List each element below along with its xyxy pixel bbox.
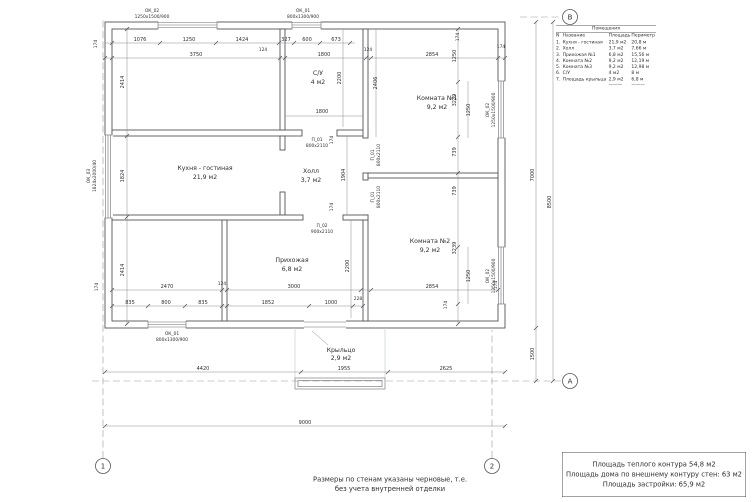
dim-label: 739 bbox=[452, 186, 458, 196]
summary-line-2: Площадь дома по внешнему контуру стен: 6… bbox=[563, 469, 746, 479]
dim-label: 174 bbox=[93, 40, 99, 49]
dim-label: 2200 bbox=[345, 260, 351, 273]
summary-box: Площадь теплого контура 54,8 м2 Площадь … bbox=[562, 452, 746, 497]
dim-label: 3750 bbox=[190, 52, 203, 58]
axis-label-2: 2 bbox=[490, 463, 494, 471]
room-name-entry: Прихожая bbox=[275, 257, 308, 264]
floor-plan-drawing: В А 1 2 Кухня - гостиная 21,9 м2 С/У 4 м… bbox=[0, 0, 753, 502]
dim-label: 2625 bbox=[440, 366, 453, 372]
legend-cell-area: 2,9 м2——— bbox=[609, 77, 632, 89]
dim-label: 2414 bbox=[120, 264, 126, 277]
room-area-wc: 4 м2 bbox=[311, 79, 326, 86]
dim-label: 124 bbox=[364, 47, 373, 53]
dim-label: 1904 bbox=[341, 169, 347, 182]
axis-label-b: В bbox=[568, 14, 573, 22]
dim-label: 739 bbox=[452, 147, 458, 157]
legend-cell-name: Кухня - гостиная bbox=[563, 40, 609, 46]
window-tag-size: 1250х1500/900 bbox=[491, 92, 497, 127]
dim-label: 600 bbox=[302, 37, 312, 43]
dim-label: 174 bbox=[493, 281, 499, 290]
dim-label: 800 bbox=[161, 300, 171, 306]
dim-label: 1250 bbox=[452, 50, 458, 63]
dim-label: 174 bbox=[455, 33, 461, 42]
legend-dash: ——— bbox=[609, 82, 623, 87]
dim-label: 174 bbox=[329, 136, 335, 145]
window-tag-size: 1250х1500/900 bbox=[135, 14, 170, 20]
room-area-hall: 3,7 м2 bbox=[301, 177, 321, 184]
dim-label: 228 bbox=[354, 296, 363, 302]
room-name-porch: Крыльцо bbox=[327, 347, 356, 354]
note-line-2: без учета внутренней отделки bbox=[295, 484, 485, 493]
dim-label: 835 bbox=[198, 300, 208, 306]
dim-label: 124 bbox=[218, 281, 227, 287]
window-tag: ОК_02 bbox=[145, 8, 160, 14]
door-tag: П_02 bbox=[316, 223, 327, 229]
room-name-room2: Комната №2 bbox=[410, 238, 450, 245]
dim-label: 2406 bbox=[373, 77, 379, 90]
porch-steps bbox=[295, 378, 385, 389]
entry-doorway bbox=[304, 320, 346, 329]
dim-label: 9000 bbox=[299, 420, 312, 426]
dim-label: 3239 bbox=[452, 94, 458, 107]
legend-col-name: Название bbox=[563, 33, 609, 40]
summary-line-3: Площадь застройки: 65,9 м2 bbox=[563, 480, 746, 490]
dim-label: 4420 bbox=[197, 366, 210, 372]
axis-label-1: 1 bbox=[101, 463, 105, 471]
legend-header: N Название Площадь Периметр bbox=[556, 33, 656, 40]
dim-label: 174 bbox=[94, 283, 100, 292]
dim-label: 327 bbox=[281, 37, 291, 43]
window-tag: ОК_03 bbox=[86, 169, 92, 184]
room-name-hall: Холл bbox=[303, 168, 319, 175]
dim-label: 3239 bbox=[452, 242, 458, 255]
window-tag: ОК_02 bbox=[485, 269, 491, 284]
door-tag-size: 800х2110 bbox=[376, 144, 382, 166]
note-line-1: Размеры по стенам указаны черновые, т.е. bbox=[295, 475, 485, 484]
dim-label: 7000 bbox=[530, 169, 536, 182]
window-tag: ОК_01 bbox=[296, 8, 311, 14]
window-tag-size: 800х1300/900 bbox=[287, 14, 319, 20]
drawing-note: Размеры по стенам указаны черновые, т.е.… bbox=[295, 475, 485, 494]
dim-label: 1250 bbox=[466, 270, 472, 283]
door-tag: П_01 bbox=[370, 191, 376, 202]
dim-label: 124 bbox=[259, 47, 268, 53]
dim-label: 174 bbox=[329, 203, 335, 212]
door-tag-size: 900х2110 bbox=[311, 229, 333, 235]
dim-label: 3000 bbox=[288, 284, 301, 290]
room-name-kitchen: Кухня - гостиная bbox=[177, 165, 233, 172]
dim-label: 1000 bbox=[325, 300, 338, 306]
dim-label: 2854 bbox=[426, 284, 439, 290]
room-area-room1: 9,2 м2 bbox=[427, 104, 447, 111]
legend-col-area: Площадь bbox=[609, 33, 632, 40]
axis-label-a: А bbox=[568, 378, 573, 386]
dim-label: 1500 bbox=[530, 348, 536, 361]
legend-row: 7. Площадь крыльца 2,9 м2——— 6,8 м——— bbox=[556, 77, 656, 89]
room-name-wc: С/У bbox=[313, 70, 323, 77]
dim-label: 1824 bbox=[120, 170, 126, 183]
window-tag-size: 800х1300/900 bbox=[156, 337, 188, 343]
room-area-entry: 6,8 м2 bbox=[282, 266, 302, 273]
legend-value: 6,8 м bbox=[631, 77, 643, 82]
legend-cell-perimeter: 6,8 м——— bbox=[631, 77, 656, 89]
window-tag-size: 1824х2000/40 bbox=[92, 160, 98, 192]
dim-label: 1250 bbox=[183, 37, 196, 43]
dim-label: 673 bbox=[331, 37, 341, 43]
legend-table: Помещения N Название Площадь Периметр 1.… bbox=[556, 25, 656, 88]
dim-label: 174 bbox=[443, 301, 449, 310]
dim-label: 1800 bbox=[316, 109, 329, 115]
dim-label: 2200 bbox=[337, 72, 343, 85]
room-area-room2: 9,2 м2 bbox=[420, 247, 440, 254]
dim-label: 1955 bbox=[338, 366, 351, 372]
legend-cell-name: Площадь крыльца bbox=[563, 77, 609, 89]
dim-label: 1800 bbox=[318, 52, 331, 58]
door-tag: П_01 bbox=[311, 137, 322, 143]
door-tag-size: 800х2110 bbox=[306, 143, 328, 149]
window-tag: ОК_01 bbox=[165, 331, 180, 337]
dim-label: 174 bbox=[497, 44, 506, 50]
legend-col-perimeter: Периметр bbox=[631, 33, 656, 40]
dim-label: 2414 bbox=[120, 76, 126, 89]
room-area-kitchen: 21,9 м2 bbox=[193, 174, 217, 181]
legend-value: 2,9 м2 bbox=[609, 77, 624, 82]
dim-label: 835 bbox=[125, 300, 135, 306]
dim-label: 2854 bbox=[426, 52, 439, 58]
dim-label: 1424 bbox=[236, 37, 249, 43]
dim-label: 1076 bbox=[134, 37, 147, 43]
legend-title: Помещения bbox=[556, 25, 656, 33]
door-tag: П_01 bbox=[370, 149, 376, 160]
dim-label: 8500 bbox=[547, 196, 553, 209]
legend-dash: ——— bbox=[631, 82, 645, 87]
door-tag-size: 800х2110 bbox=[376, 186, 382, 208]
dim-label: 1250 bbox=[466, 104, 472, 117]
window-tag: ОК_02 bbox=[485, 103, 491, 118]
summary-line-1: Площадь теплого контура 54,8 м2 bbox=[563, 459, 746, 469]
dim-label: 1852 bbox=[262, 300, 275, 306]
dim-label: 2470 bbox=[161, 284, 174, 290]
room-area-porch: 2,9 м2 bbox=[331, 355, 351, 362]
